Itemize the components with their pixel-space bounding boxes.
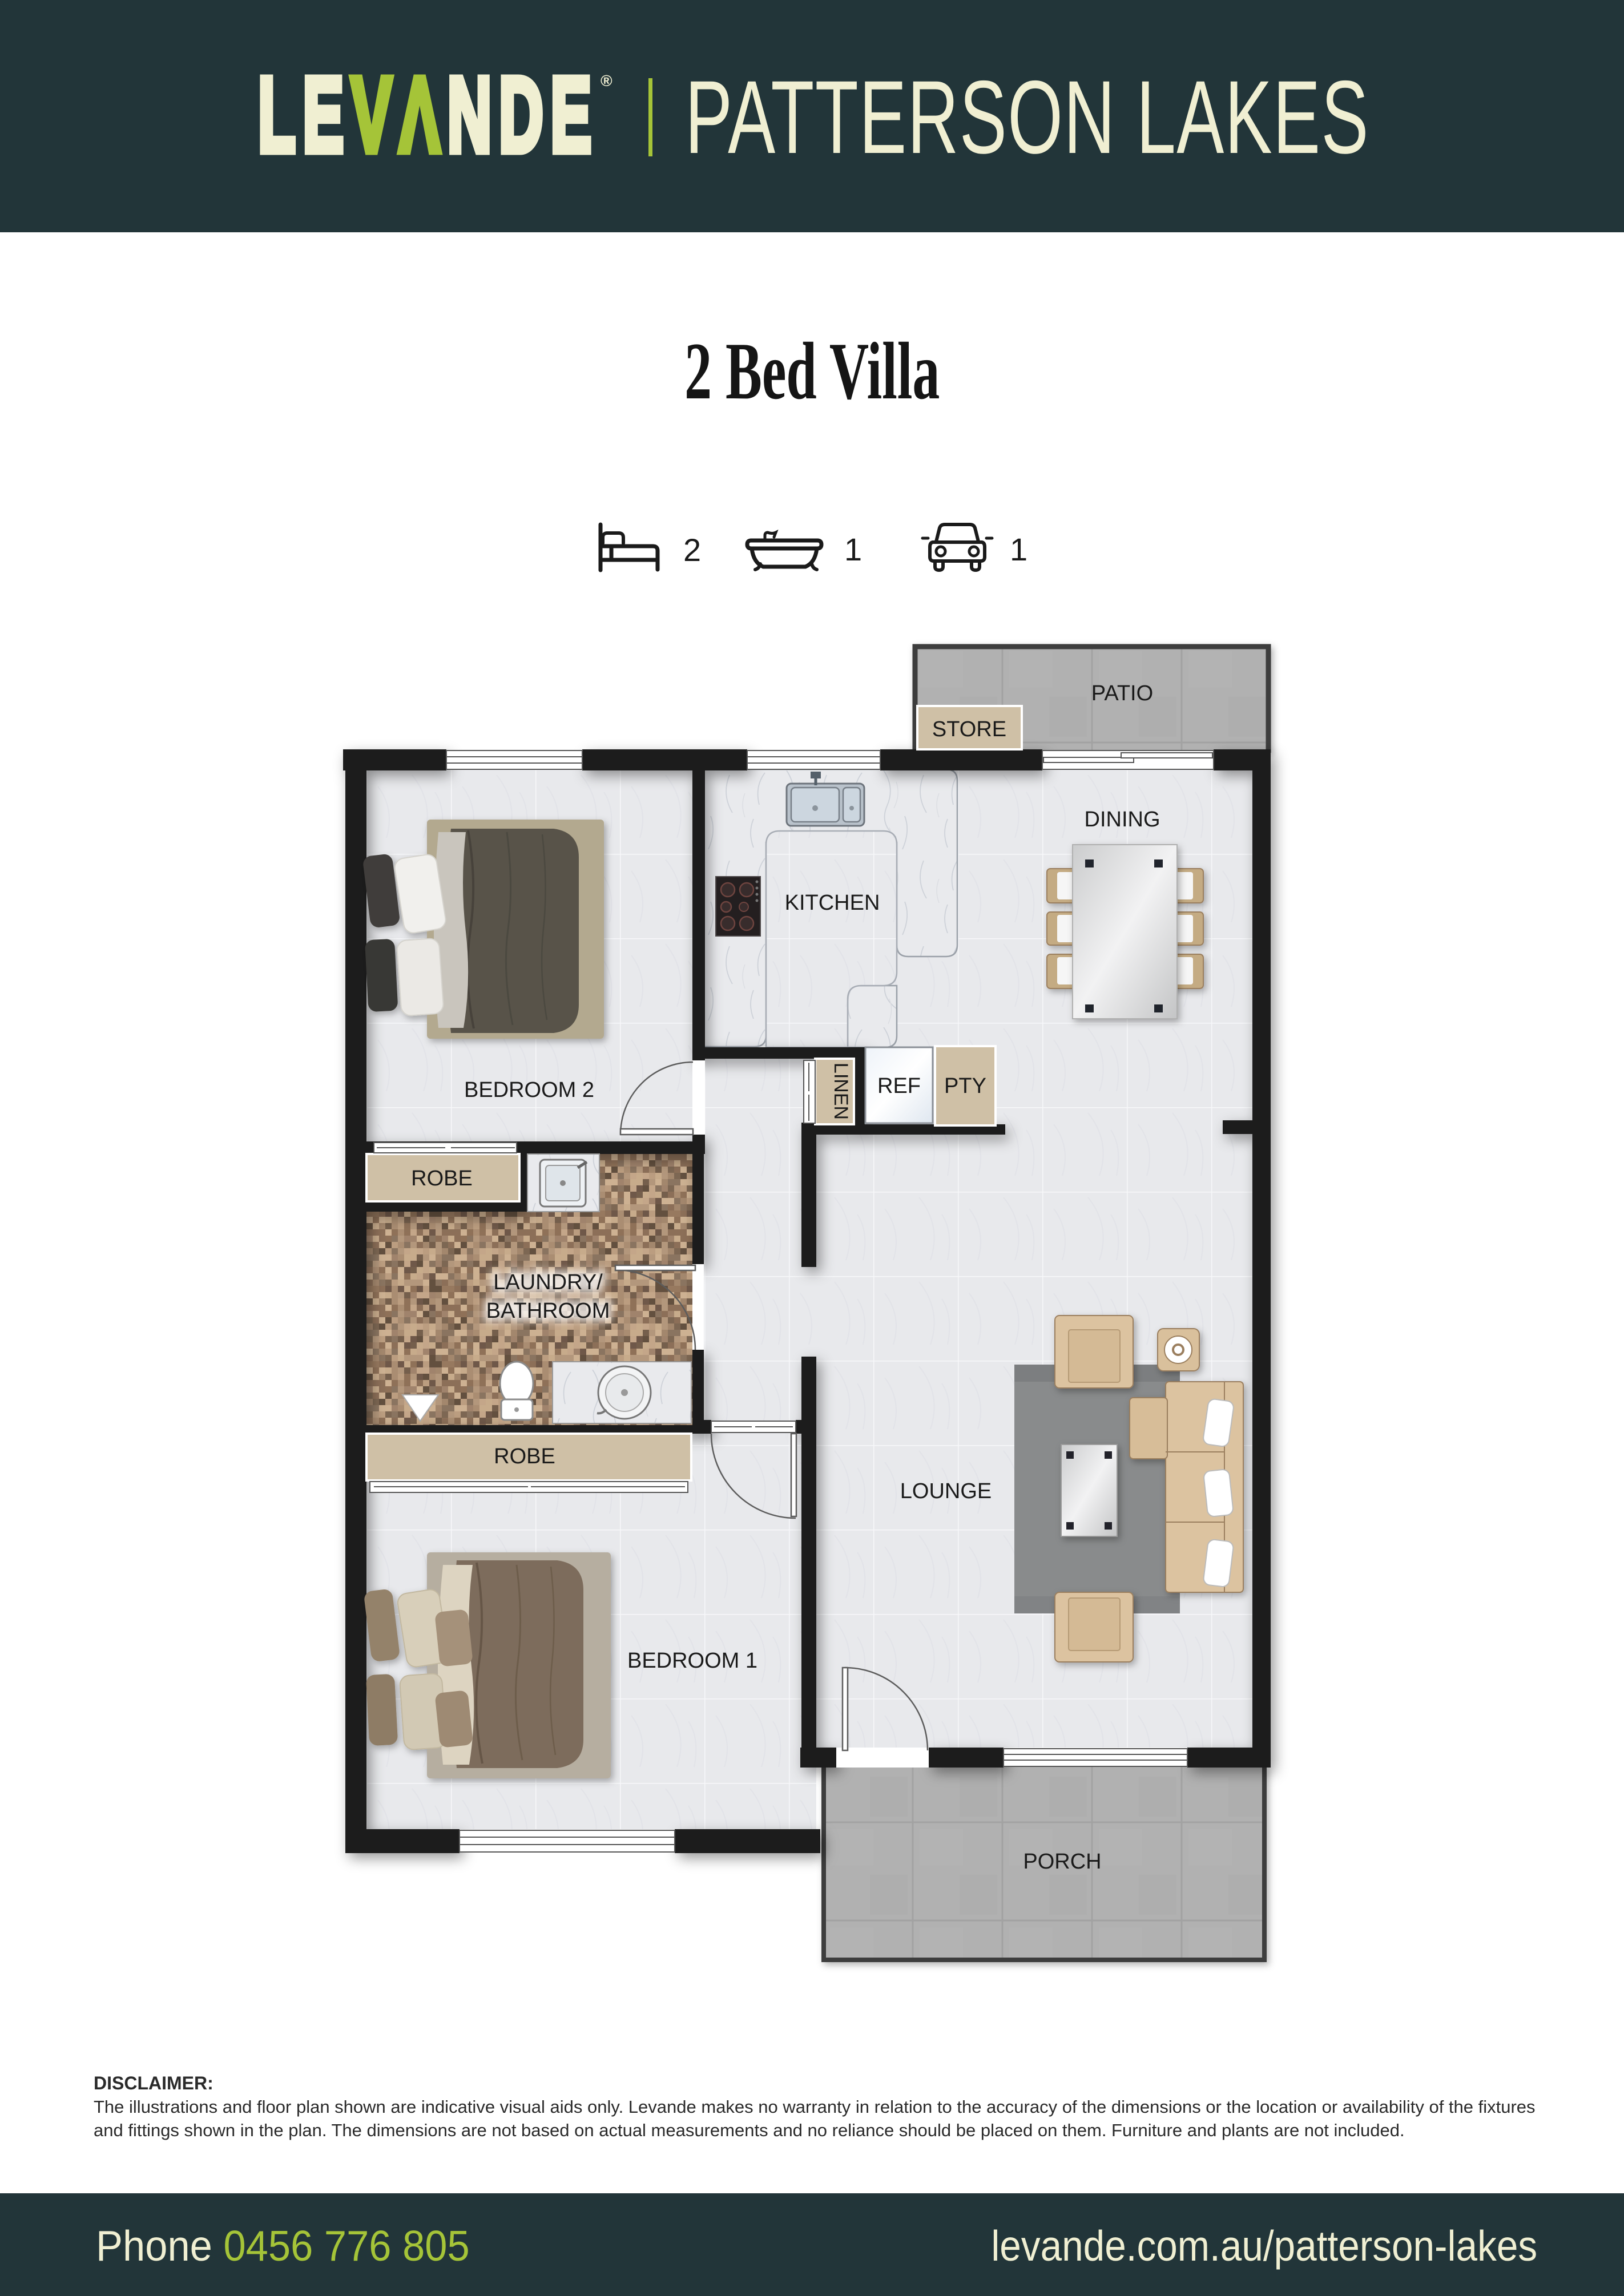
svg-text:PATIO: PATIO — [1091, 681, 1153, 705]
svg-text:LOUNGE: LOUNGE — [900, 1479, 992, 1503]
svg-text:2: 2 — [683, 532, 701, 568]
svg-text:ROBE: ROBE — [494, 1444, 555, 1468]
svg-text:BEDROOM 2: BEDROOM 2 — [464, 1078, 594, 1102]
svg-text:1: 1 — [1010, 531, 1027, 567]
svg-text:ROBE: ROBE — [411, 1167, 473, 1191]
svg-text:KITCHEN: KITCHEN — [785, 891, 880, 915]
svg-text:REF: REF — [877, 1074, 921, 1098]
svg-text:PTY: PTY — [944, 1074, 986, 1098]
svg-text:BEDROOM 1: BEDROOM 1 — [627, 1649, 757, 1673]
svg-text:DINING: DINING — [1085, 808, 1160, 832]
svg-text:PORCH: PORCH — [1023, 1850, 1101, 1874]
svg-text:BATHROOM: BATHROOM — [486, 1299, 610, 1323]
svg-text:1: 1 — [844, 531, 862, 567]
svg-text:LINEN: LINEN — [830, 1063, 852, 1120]
svg-text:STORE: STORE — [932, 717, 1006, 741]
svg-text:LAUNDRY/: LAUNDRY/ — [493, 1270, 603, 1294]
